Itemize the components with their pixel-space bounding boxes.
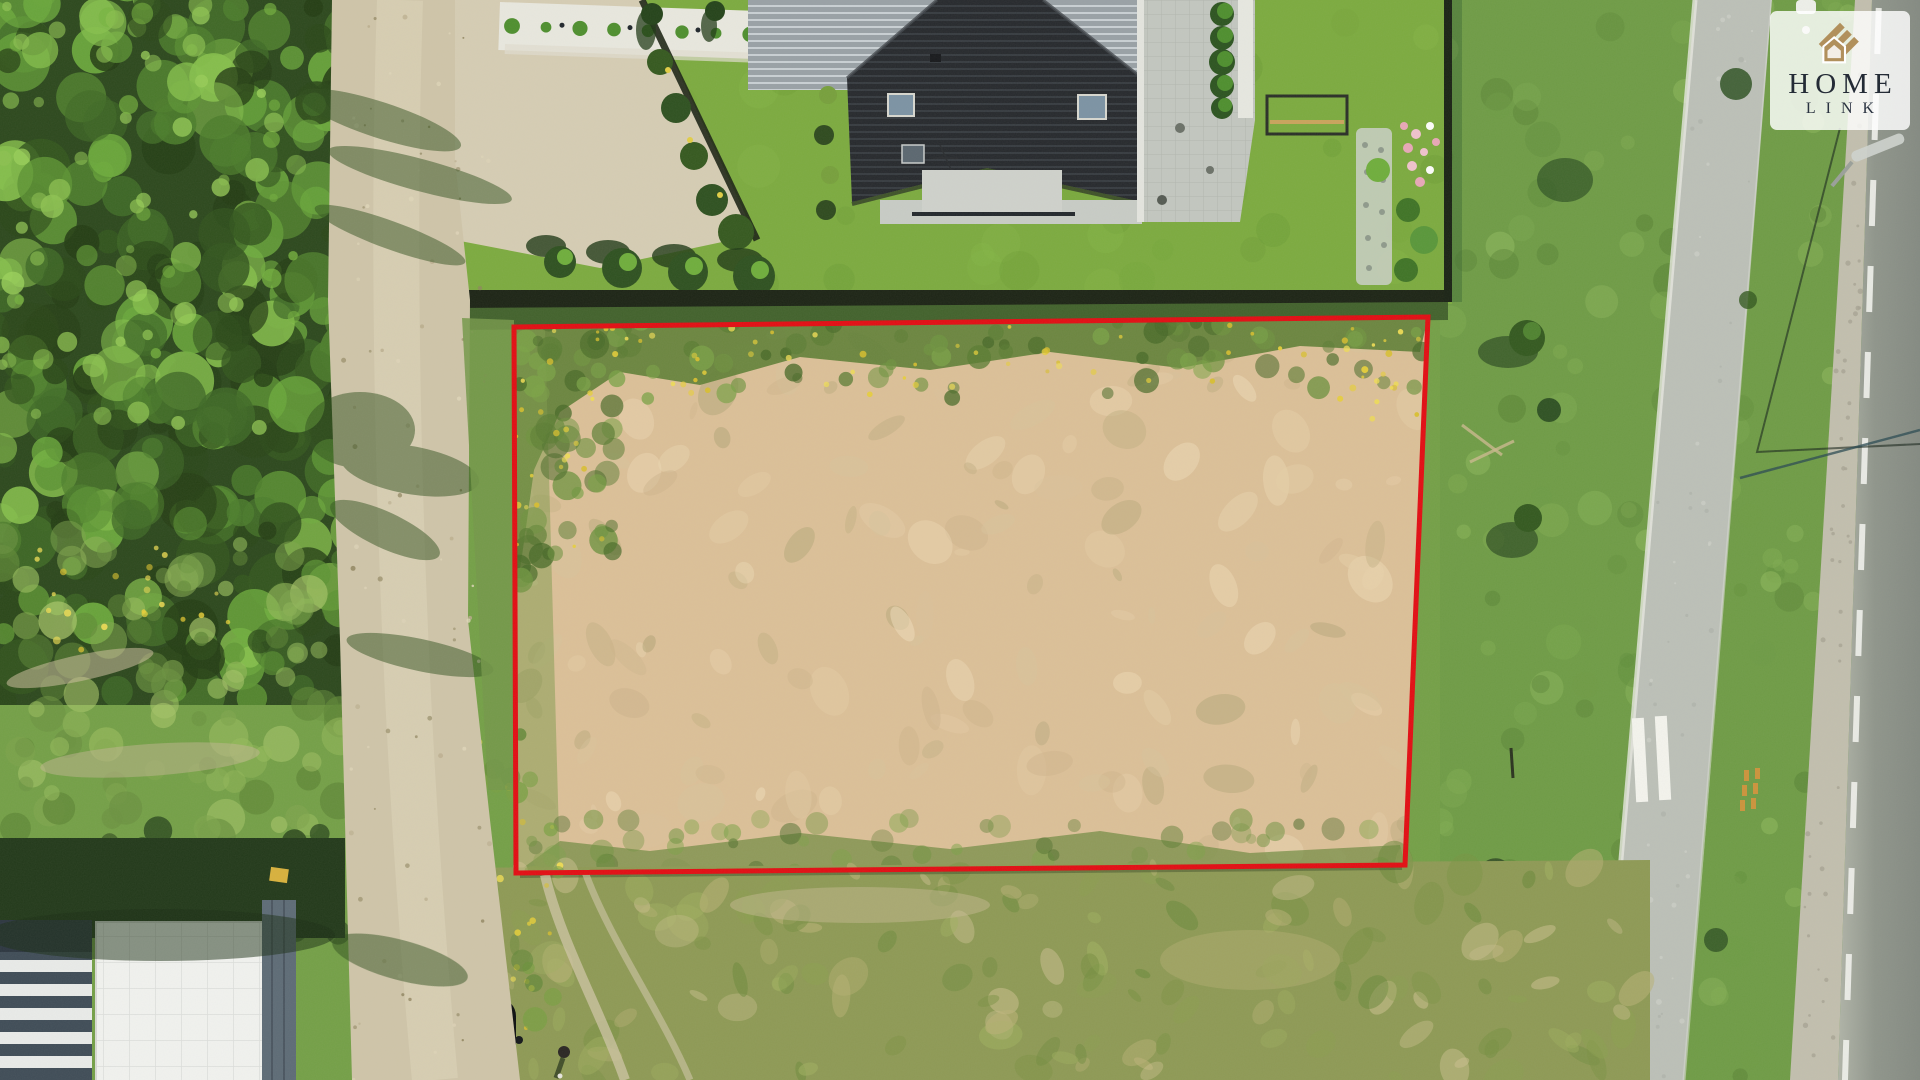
patio-item xyxy=(1157,195,1167,205)
aerial-photo xyxy=(0,0,1920,1080)
home-link-logo-icon xyxy=(1815,19,1865,69)
striped-building xyxy=(0,948,92,1080)
dry-patch xyxy=(730,887,990,923)
tree xyxy=(1514,504,1542,532)
fern xyxy=(1394,258,1418,282)
patio xyxy=(1137,0,1255,222)
watermark-logo: HOME LINK xyxy=(1770,11,1910,130)
bush xyxy=(1720,68,1752,100)
bush-shadow xyxy=(1537,158,1593,202)
logo-text-link: LINK xyxy=(1796,100,1884,118)
patio-edge-white xyxy=(1137,0,1144,222)
aerial-photo-listing: HOME LINK xyxy=(0,0,1920,1080)
tree xyxy=(1537,398,1561,422)
yellow-container xyxy=(269,867,289,883)
bush xyxy=(1739,291,1757,309)
bush-strip-white xyxy=(1238,0,1253,118)
skylight xyxy=(1078,95,1106,119)
logo-text-home: HOME xyxy=(1782,69,1897,99)
side-fence-right xyxy=(1444,0,1452,302)
land-plot xyxy=(503,305,1437,887)
fern xyxy=(1396,198,1420,222)
tree-highlight xyxy=(1523,322,1541,340)
house-parcel xyxy=(455,0,1462,330)
fence-shadow-right xyxy=(1452,0,1462,302)
big-leaf-plant xyxy=(1366,158,1390,182)
terrace-floor xyxy=(922,170,1062,216)
chimney xyxy=(930,54,941,62)
building-shadow xyxy=(0,909,335,961)
survey-pole xyxy=(1511,748,1513,778)
fern xyxy=(1410,226,1438,254)
buildings-bottom-left xyxy=(0,838,345,1080)
roof-hatch xyxy=(902,145,924,163)
bush xyxy=(1704,928,1728,952)
patio-item xyxy=(1175,123,1185,133)
dry-patch xyxy=(1160,930,1340,990)
patio-item xyxy=(1206,166,1214,174)
skylight xyxy=(888,94,914,116)
